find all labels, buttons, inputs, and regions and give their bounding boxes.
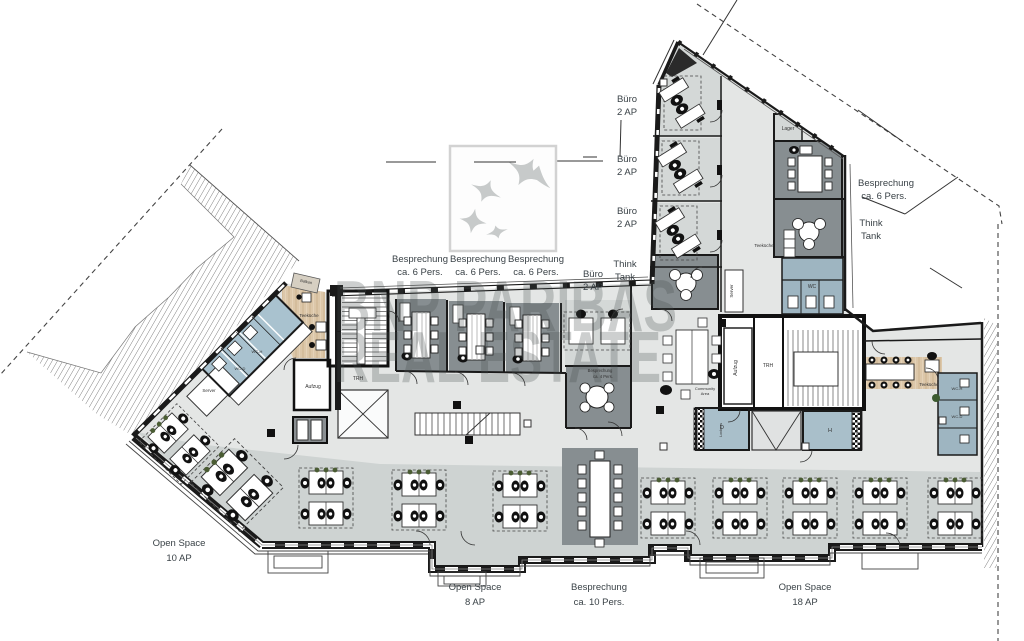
svg-text:Tank: Tank <box>861 231 881 242</box>
svg-text:Besprechung: Besprechung <box>588 368 613 373</box>
svg-text:Besprechung: Besprechung <box>571 582 627 593</box>
svg-text:Server: Server <box>729 284 734 298</box>
svg-text:ca. 6 Pers.: ca. 6 Pers. <box>861 191 906 202</box>
svg-text:Teeküche: Teeküche <box>754 243 774 248</box>
svg-text:8 AP: 8 AP <box>465 597 485 608</box>
svg-text:ca. 6 Pers.: ca. 6 Pers. <box>455 267 500 278</box>
svg-text:Server: Server <box>202 388 216 393</box>
svg-text:2 AP: 2 AP <box>583 282 603 293</box>
svg-text:D: D <box>720 425 724 431</box>
svg-text:WC-D: WC-D <box>235 366 246 371</box>
svg-text:ca. 6 Pers.: ca. 6 Pers. <box>513 267 558 278</box>
svg-text:18 AP: 18 AP <box>792 597 817 608</box>
svg-text:H: H <box>828 428 832 434</box>
svg-text:Büro: Büro <box>617 206 637 217</box>
svg-text:WC-H: WC-H <box>252 349 263 354</box>
svg-text:Lager: Lager <box>782 126 795 132</box>
svg-text:10 AP: 10 AP <box>166 553 191 564</box>
svg-text:TRH: TRH <box>763 363 774 369</box>
svg-text:2 AP: 2 AP <box>617 219 637 230</box>
svg-text:WC-H: WC-H <box>952 386 963 391</box>
svg-text:Teeküche: Teeküche <box>299 313 319 318</box>
svg-text:2 AP: 2 AP <box>617 167 637 178</box>
svg-text:Besprechung: Besprechung <box>392 254 448 265</box>
svg-text:TRH: TRH <box>353 376 364 382</box>
svg-text:Aufzug: Aufzug <box>733 360 739 376</box>
svg-text:REAL ESTATE: REAL ESTATE <box>334 318 661 398</box>
svg-text:WC-D: WC-D <box>952 414 963 419</box>
svg-text:Think: Think <box>859 218 882 229</box>
svg-text:WC: WC <box>808 284 817 290</box>
svg-text:ca. 6 Pers.: ca. 6 Pers. <box>397 267 442 278</box>
svg-text:ca. 4 Pers.: ca. 4 Pers. <box>593 374 613 379</box>
svg-text:Besprechung: Besprechung <box>858 178 914 189</box>
svg-text:Tank: Tank <box>615 272 635 283</box>
svg-text:Besprechung: Besprechung <box>450 254 506 265</box>
svg-text:ca. 10 Pers.: ca. 10 Pers. <box>574 597 625 608</box>
svg-text:Think: Think <box>613 259 636 270</box>
svg-text:Aufzug: Aufzug <box>305 384 321 390</box>
svg-text:Büro: Büro <box>617 154 637 165</box>
svg-text:Besprechung: Besprechung <box>508 254 564 265</box>
svg-text:Open Space: Open Space <box>153 538 206 549</box>
svg-text:Büro: Büro <box>583 269 603 280</box>
svg-text:2 AP: 2 AP <box>617 107 637 118</box>
svg-text:Open Space: Open Space <box>779 582 832 593</box>
svg-text:Teeküche: Teeküche <box>919 382 939 387</box>
svg-text:Lockers: Lockers <box>854 425 859 439</box>
svg-text:Area: Area <box>701 391 710 396</box>
svg-text:Büro: Büro <box>617 94 637 105</box>
svg-text:Open Space: Open Space <box>449 582 502 593</box>
